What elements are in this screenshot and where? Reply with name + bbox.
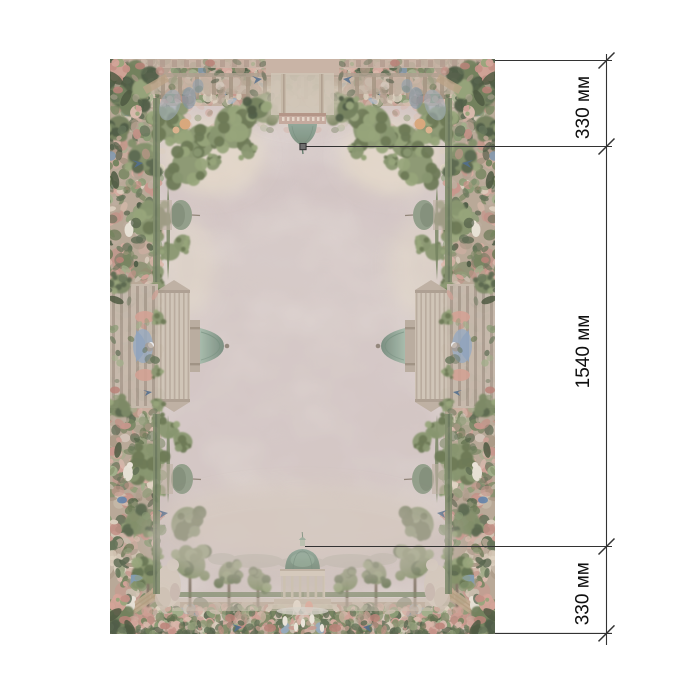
svg-text:1540 мм: 1540 мм xyxy=(573,315,594,389)
svg-text:330 мм: 330 мм xyxy=(573,76,594,139)
svg-text:330 мм: 330 мм xyxy=(573,562,594,625)
